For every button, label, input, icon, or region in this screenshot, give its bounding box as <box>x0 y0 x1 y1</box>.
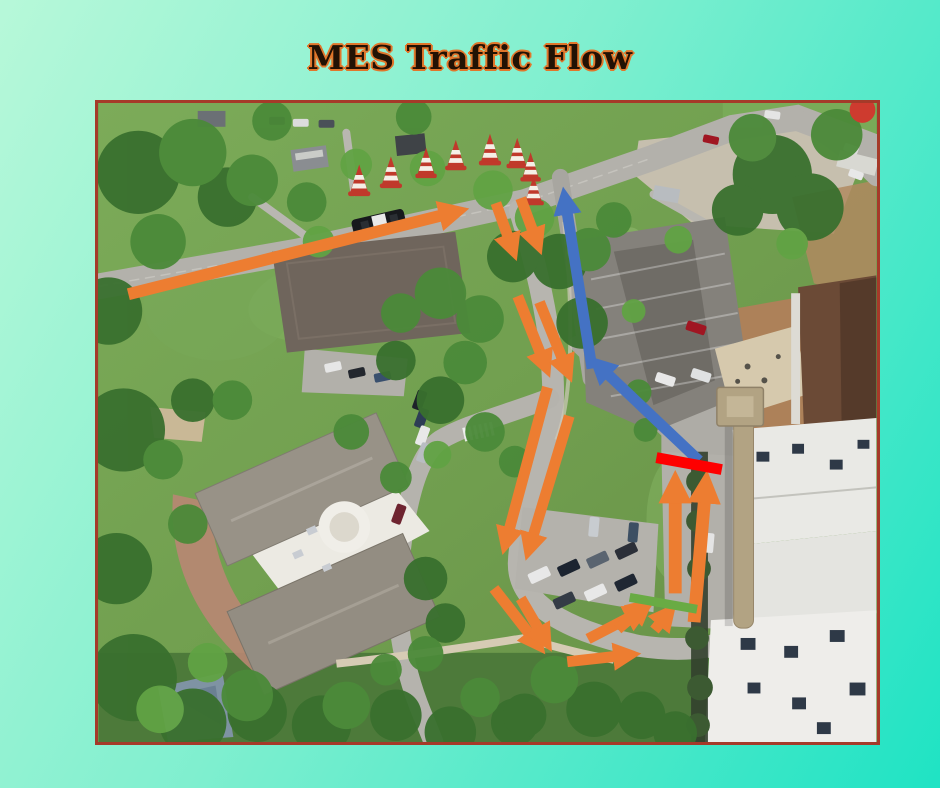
page-title: MES Traffic Flow <box>0 38 940 77</box>
traffic-flow-map <box>95 100 880 745</box>
campus-aerial-photo <box>98 103 877 742</box>
slide: { "slide": { "title": "MES Traffic Flow"… <box>0 0 940 788</box>
